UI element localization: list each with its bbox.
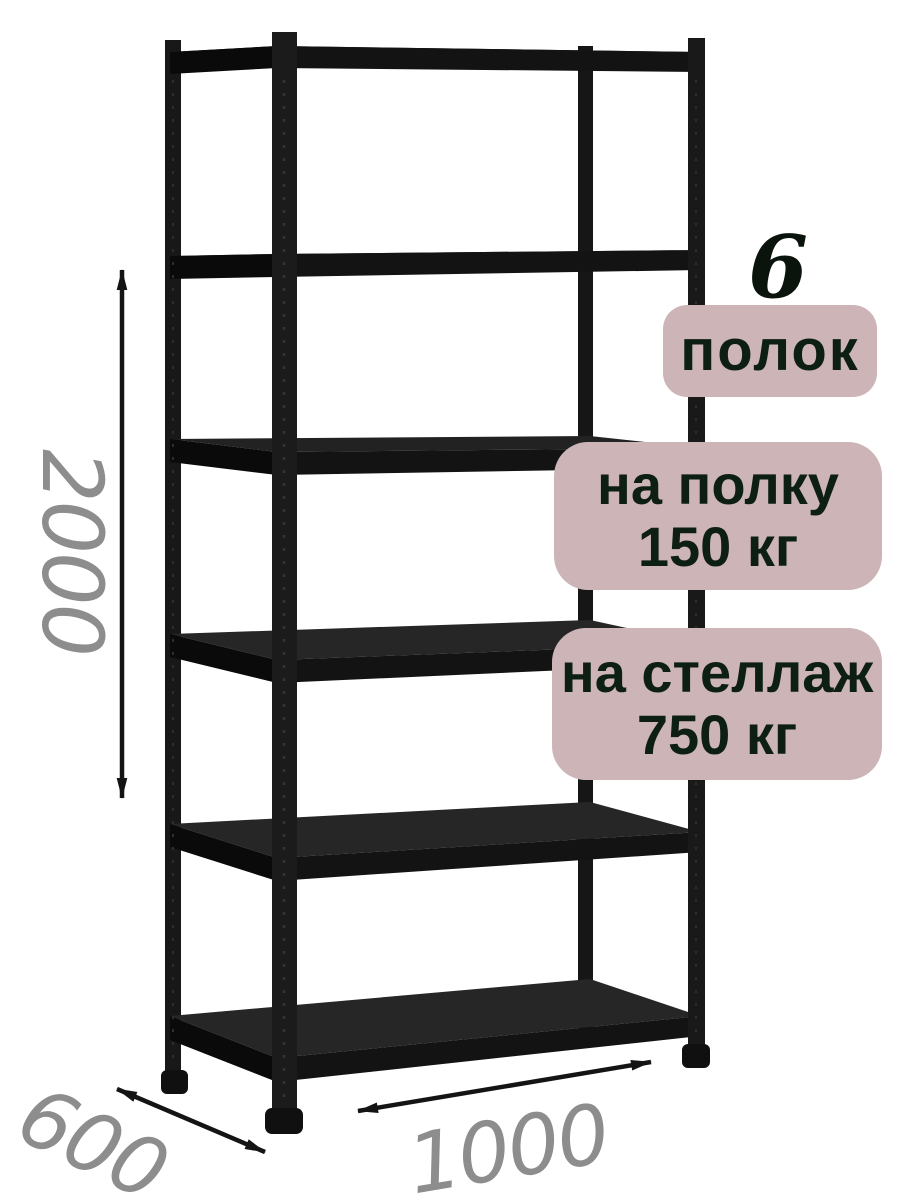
shelf-count-number: 6	[748, 218, 808, 319]
rack-load-line1: на стеллаж	[561, 642, 873, 704]
height-dimension-label: 2000	[23, 449, 121, 655]
shelf-load-line1: на полку	[597, 454, 839, 516]
shelf-load-line2: 150 кг	[638, 516, 798, 578]
rack-load-badge: на стеллаж 750 кг	[552, 628, 882, 780]
rack-load-line2: 750 кг	[637, 704, 797, 766]
product-image: 2000 600 1000 6 полок на полку 150 кг на…	[0, 0, 900, 1200]
shelf-count-badge: полок	[663, 305, 877, 397]
shelf-count-label: полок	[680, 322, 860, 380]
rack-rear-posts	[165, 40, 593, 1076]
shelving-rack-illustration	[0, 0, 900, 1200]
shelf-load-badge: на полку 150 кг	[554, 442, 882, 590]
